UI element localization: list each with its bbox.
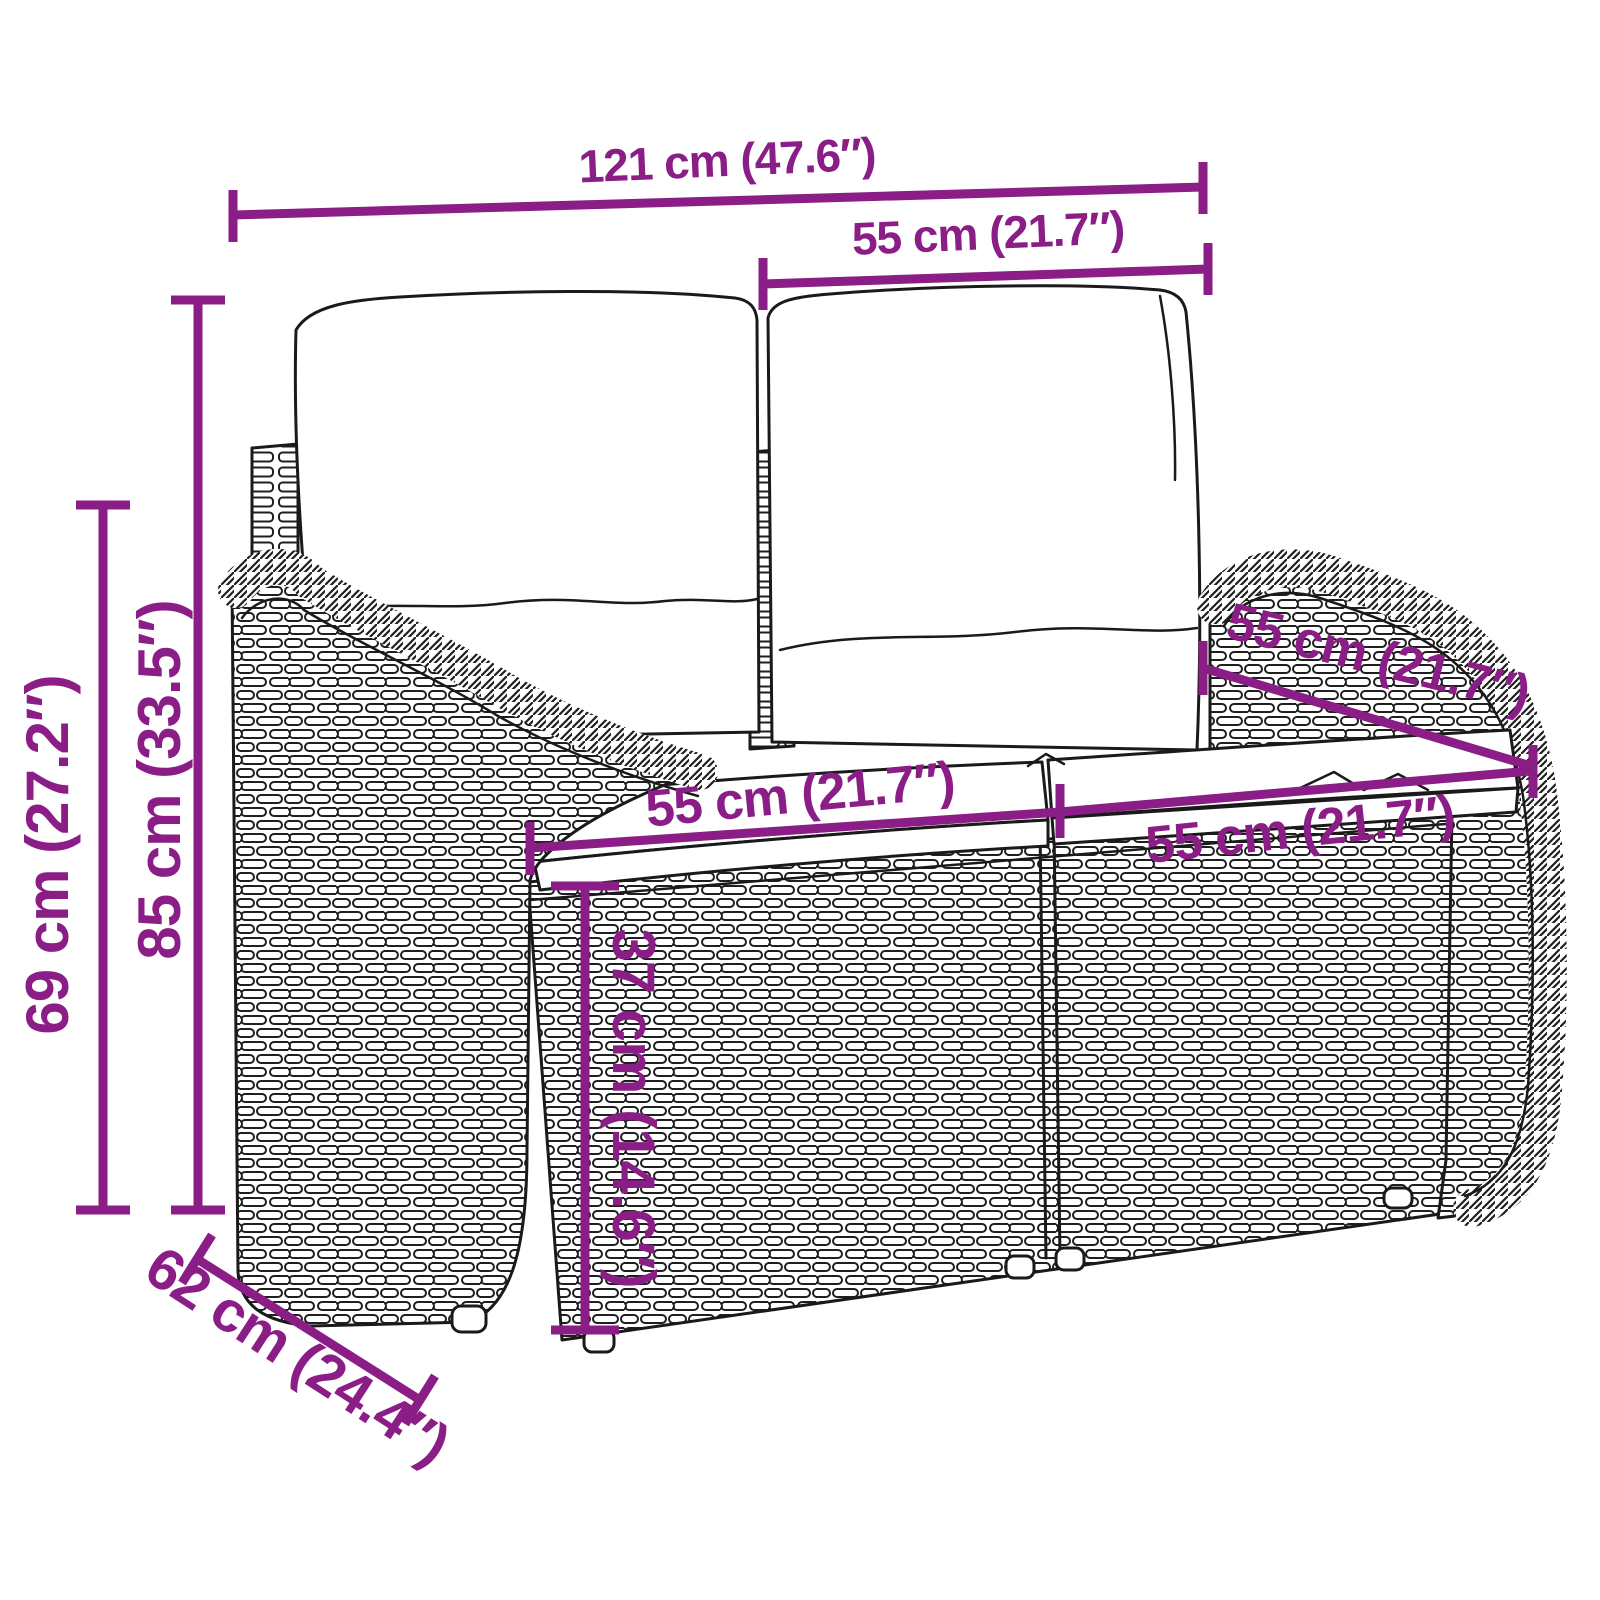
dim-line-armrest-height xyxy=(76,505,130,1210)
dim-label-seat-height: 37 cm (14.6″) xyxy=(603,928,663,1287)
back-cushion-right xyxy=(768,286,1200,750)
dim-label-total-width: 121 cm (47.6″) xyxy=(578,131,877,190)
dim-label-back-cushion-width: 55 cm (21.7″) xyxy=(851,204,1125,262)
diagram-canvas: 121 cm (47.6″) 55 cm (21.7″) 85 cm (33.5… xyxy=(0,0,1600,1600)
dim-label-total-height: 85 cm (33.5″) xyxy=(130,600,190,959)
dim-label-armrest-height: 69 cm (27.2″) xyxy=(18,675,78,1034)
